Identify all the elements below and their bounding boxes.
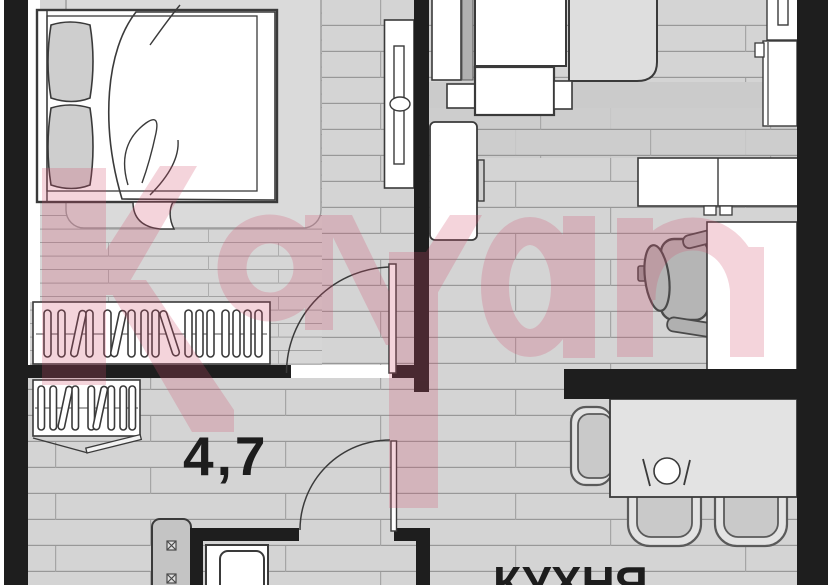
svg-text:КУХНЯ: КУХНЯ (493, 557, 648, 585)
svg-text:4,7: 4,7 (183, 425, 268, 487)
